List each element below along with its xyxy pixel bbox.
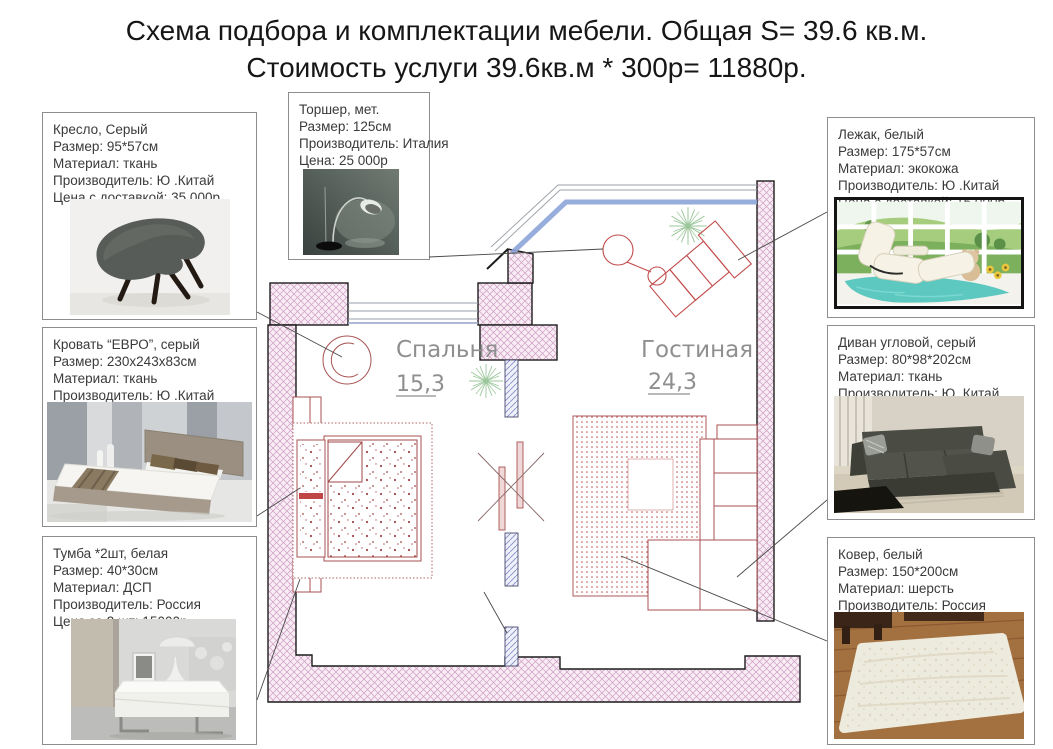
- bedroom-area: 15,3: [396, 372, 445, 397]
- item-name: Ковер, белый: [838, 546, 1030, 563]
- callout-carpet: Ковер, белый Размер: 150*200см Материал:…: [827, 537, 1035, 745]
- item-name: Кровать “ЕВРО”, серый: [53, 336, 252, 353]
- lounger-photo: [834, 197, 1024, 309]
- bay-window: [491, 185, 757, 253]
- item-material: Материал: ткань: [53, 155, 252, 172]
- armchair-symbol: [323, 336, 371, 384]
- page-title: Схема подбора и комплектации мебели. Общ…: [0, 12, 1053, 86]
- item-manufacturer: Производитель: Ю .Китай: [53, 172, 252, 189]
- item-name: Диван угловой, серый: [838, 334, 1030, 351]
- plant-sketch-bedroom: [469, 364, 503, 398]
- nightstand-photo: [71, 619, 236, 740]
- item-material: Материал: шерсть: [838, 580, 1030, 597]
- item-size: Размер: 80*98*202см: [838, 351, 1030, 368]
- item-size: Размер: 230х243х83см: [53, 353, 252, 370]
- bedroom-window: [348, 303, 478, 323]
- item-manufacturer: Производитель: Россия: [53, 596, 252, 613]
- callout-lounger: Лежак, белый Размер: 175*57см Материал: …: [827, 117, 1035, 318]
- sofa-photo: [834, 396, 1024, 513]
- bed-symbol: [293, 423, 432, 578]
- partition-wall: [505, 360, 518, 666]
- item-name: Лежак, белый: [838, 126, 1030, 143]
- title-line-1: Схема подбора и комплектации мебели. Общ…: [0, 12, 1053, 49]
- callout-nightstand: Тумба *2шт, белая Размер: 40*30см Матери…: [42, 536, 257, 745]
- title-line-2: Стоимость услуги 39.6кв.м * 300р= 11880р…: [0, 49, 1053, 86]
- living-area: 24,3: [648, 370, 697, 395]
- item-manufacturer: Производитель: Италия: [299, 135, 425, 152]
- item-size: Размер: 125см: [299, 118, 425, 135]
- armchair-photo: [70, 199, 230, 315]
- callout-bed: Кровать “ЕВРО”, серый Размер: 230х243х83…: [42, 327, 257, 527]
- item-size: Размер: 150*200см: [838, 563, 1030, 580]
- torchere-specs: Торшер, мет. Размер: 125см Производитель…: [299, 101, 425, 169]
- bed-photo: [47, 402, 252, 522]
- nightstand-specs: Тумба *2шт, белая Размер: 40*30см Матери…: [53, 545, 252, 630]
- item-name: Кресло, Серый: [53, 121, 252, 138]
- item-manufacturer: Производитель: Ю .Китай: [838, 177, 1030, 194]
- furniture-scheme-page: Схема подбора и комплектации мебели. Общ…: [0, 0, 1053, 749]
- item-size: Размер: 95*57см: [53, 138, 252, 155]
- bedroom-label: Спальня: [396, 337, 498, 363]
- item-name: Торшер, мет.: [299, 101, 425, 118]
- carpet-photo: [834, 612, 1024, 739]
- item-material: Материал: ДСП: [53, 579, 252, 596]
- item-size: Размер: 40*30см: [53, 562, 252, 579]
- callout-armchair: Кресло, Серый Размер: 95*57см Материал: …: [42, 112, 257, 320]
- item-material: Материал: ткань: [53, 370, 252, 387]
- armchair-specs: Кресло, Серый Размер: 95*57см Материал: …: [53, 121, 252, 206]
- item-material: Материал: ткань: [838, 368, 1030, 385]
- item-size: Размер: 175*57см: [838, 143, 1030, 160]
- item-material: Материал: экокожа: [838, 160, 1030, 177]
- floor-lamp-symbol: [603, 235, 666, 285]
- callout-sofa: Диван угловой, серый Размер: 80*98*202см…: [827, 325, 1035, 520]
- lounger-symbol: [645, 221, 751, 323]
- living-label: Гостиная: [641, 337, 753, 363]
- floor-plan: Спальня 15,3 Гостиная 24,3: [253, 163, 829, 720]
- item-name: Тумба *2шт, белая: [53, 545, 252, 562]
